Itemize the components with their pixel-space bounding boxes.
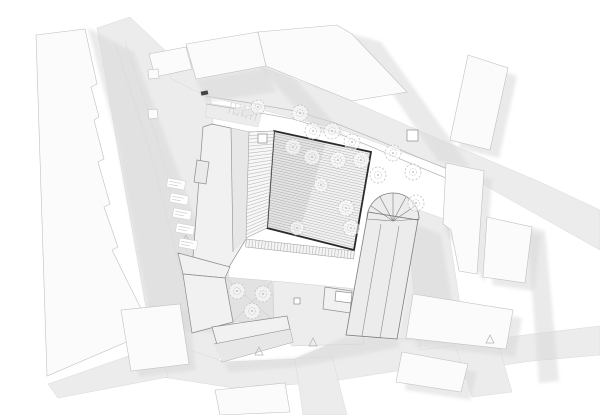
tree-trunk <box>312 130 314 132</box>
context-annex-nw-1 <box>148 69 159 79</box>
tree-trunk <box>320 184 322 186</box>
context-building-sw <box>121 304 189 371</box>
tree-trunk <box>292 146 294 148</box>
tree-trunk <box>262 293 264 295</box>
roof-opening-square <box>294 298 300 304</box>
tree-icon <box>285 139 301 155</box>
tree-icon <box>353 152 369 168</box>
tree-icon <box>251 100 265 114</box>
tree-icon <box>385 145 401 161</box>
tree-trunk <box>377 174 379 176</box>
tree-icon <box>314 178 328 192</box>
site-plan-canvas <box>0 0 600 415</box>
tree-icon <box>408 195 424 211</box>
tree-icon <box>304 149 320 165</box>
context-annex-nw-2 <box>148 109 158 119</box>
tree-trunk <box>392 152 394 154</box>
tree-trunk <box>345 207 347 209</box>
tree-icon <box>370 167 386 183</box>
context-building-e2 <box>483 217 532 283</box>
tree-trunk <box>331 130 333 132</box>
tree-icon <box>255 286 271 302</box>
project-shed-white <box>335 291 352 303</box>
roof-opening-square <box>258 134 267 143</box>
tree-icon <box>343 220 359 236</box>
tree-trunk <box>360 159 362 161</box>
tree-trunk <box>257 106 259 108</box>
tree-trunk <box>236 290 238 292</box>
tree-icon <box>338 200 354 216</box>
site-plan <box>0 0 600 415</box>
tree-icon <box>305 123 321 139</box>
project-wing-west <box>183 274 233 333</box>
tree-trunk <box>412 171 414 173</box>
tree-icon <box>292 105 308 121</box>
tree-icon <box>344 134 360 150</box>
tree-trunk <box>296 227 298 229</box>
tree-icon <box>330 152 346 168</box>
roof-opening-square <box>407 130 418 141</box>
tree-trunk <box>337 159 339 161</box>
tree-trunk <box>251 310 253 312</box>
tree-icon <box>290 221 304 235</box>
tree-icon <box>324 123 340 139</box>
tree-icon <box>405 164 421 180</box>
tree-trunk <box>351 141 353 143</box>
tree-trunk <box>415 202 417 204</box>
tree-trunk <box>299 112 301 114</box>
tree-icon <box>244 303 260 319</box>
tree-icon <box>229 283 245 299</box>
tree-trunk <box>350 227 352 229</box>
tree-trunk <box>311 156 313 158</box>
project-hatched-patch <box>194 160 209 184</box>
